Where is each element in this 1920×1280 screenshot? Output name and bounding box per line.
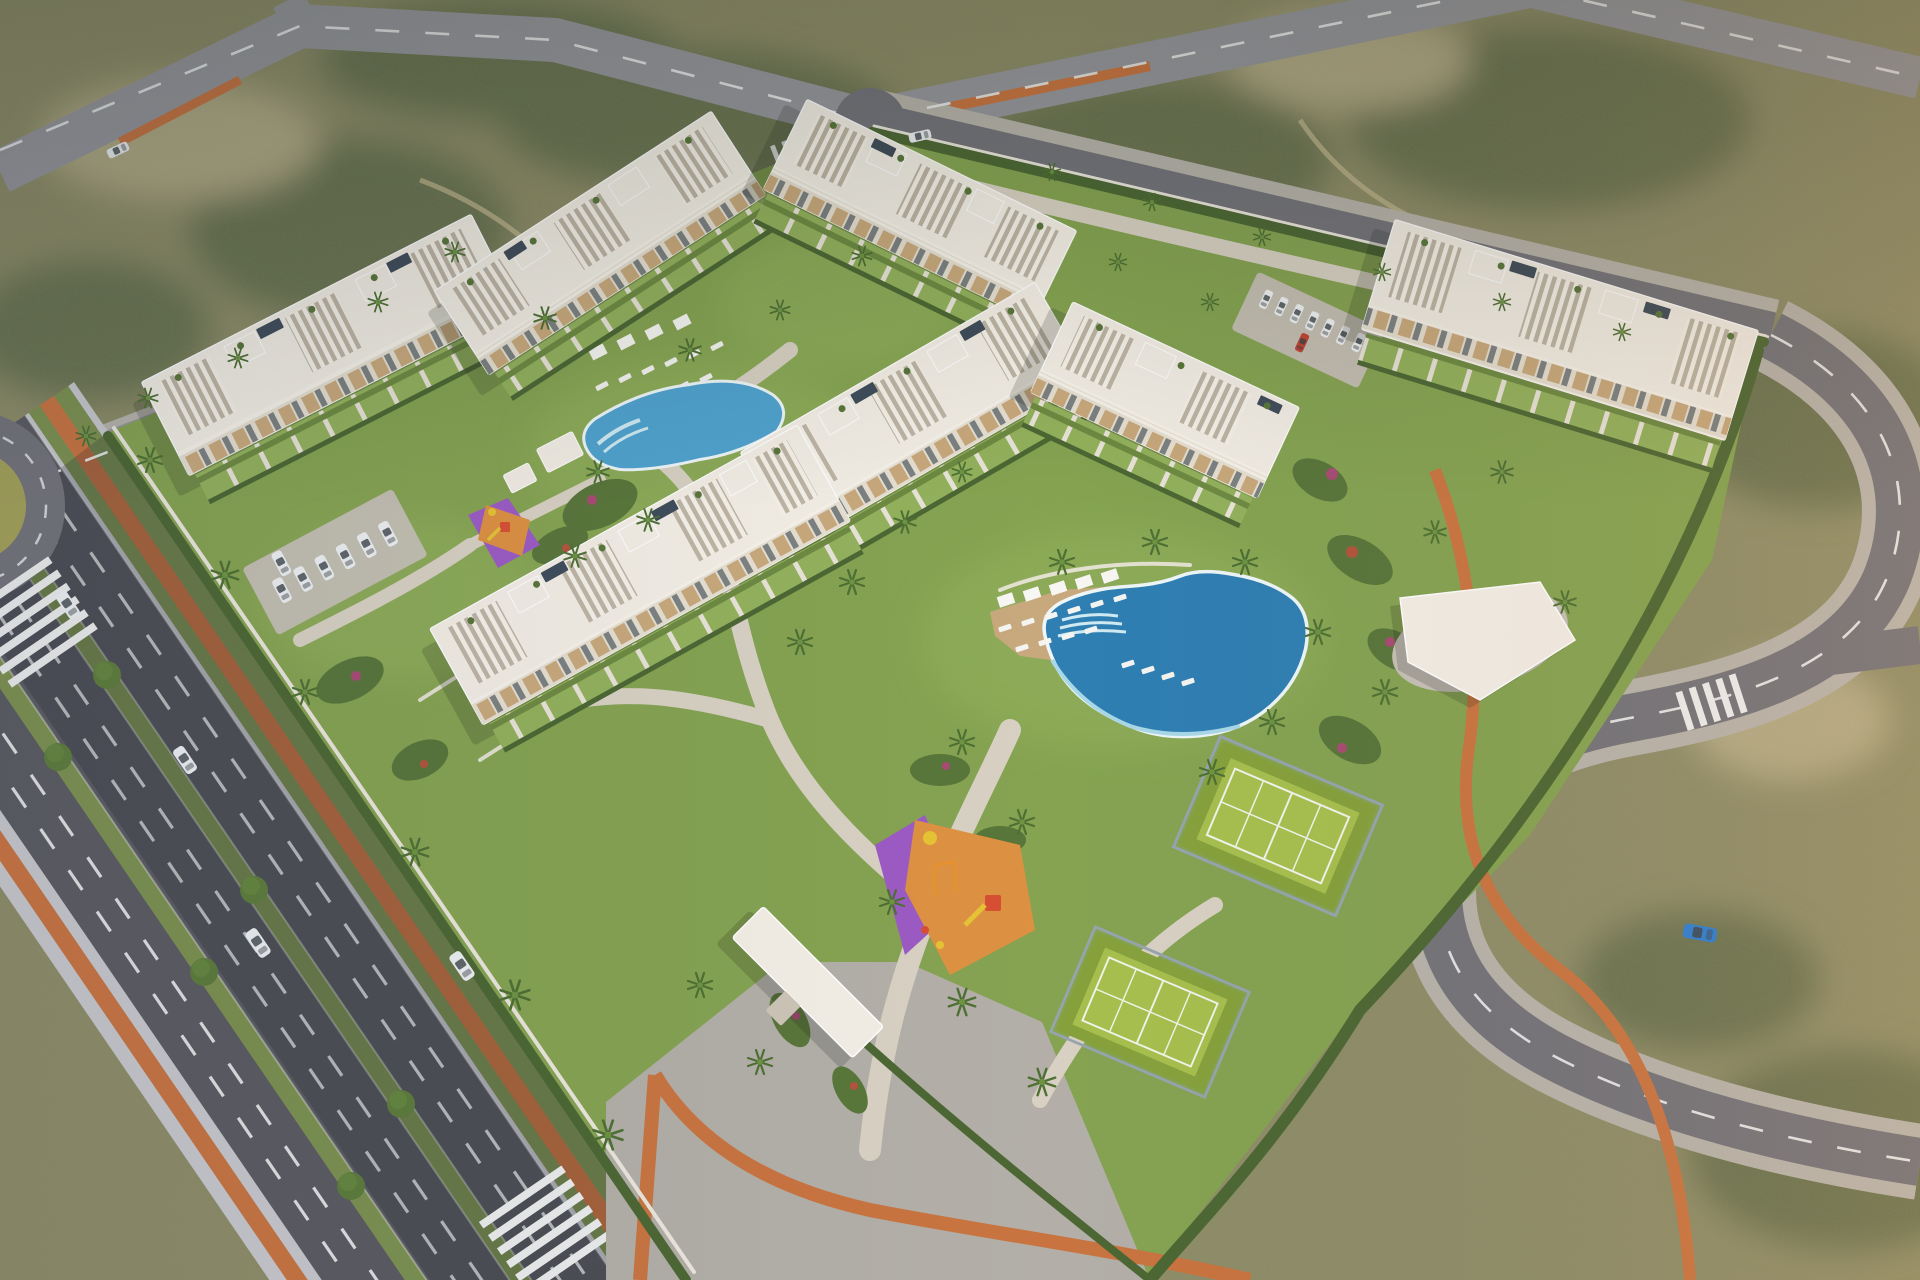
scene-canvas [0, 0, 1920, 1280]
aerial-render [0, 0, 1920, 1280]
top-shade-overlay [0, 0, 1920, 1280]
